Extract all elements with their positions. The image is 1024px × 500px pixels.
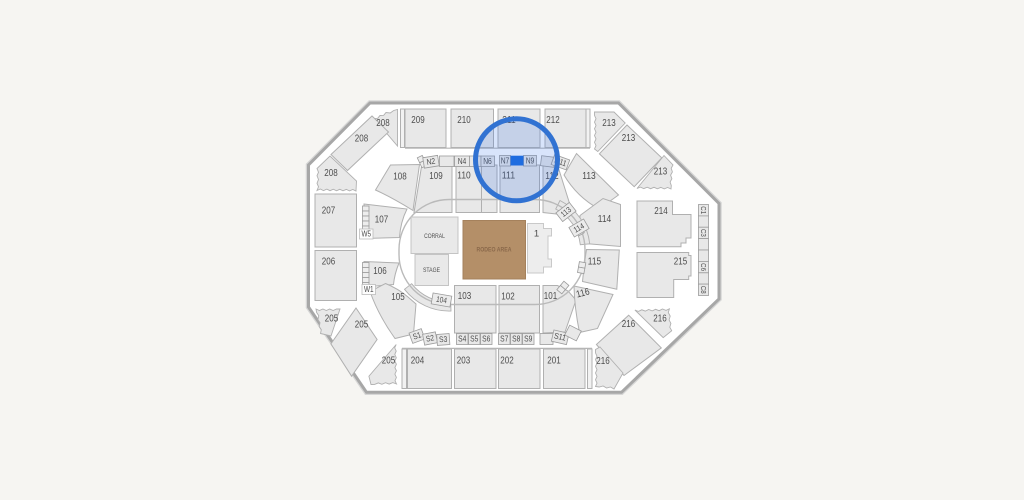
svg-text:113: 113 — [582, 171, 596, 182]
svg-text:215: 215 — [674, 257, 688, 268]
svg-text:205: 205 — [382, 356, 396, 367]
svg-text:107: 107 — [375, 215, 388, 226]
svg-text:CORRAL: CORRAL — [424, 233, 445, 240]
svg-text:W1: W1 — [364, 285, 374, 294]
svg-text:N2: N2 — [426, 157, 436, 167]
svg-text:RODEO AREA: RODEO AREA — [477, 247, 512, 254]
svg-text:S9: S9 — [524, 335, 533, 344]
svg-text:208: 208 — [324, 168, 338, 179]
svg-text:W5: W5 — [362, 230, 372, 239]
svg-text:205: 205 — [325, 314, 339, 325]
svg-text:S3: S3 — [439, 335, 448, 345]
svg-text:206: 206 — [322, 257, 336, 268]
svg-text:207: 207 — [322, 206, 335, 217]
svg-text:204: 204 — [411, 356, 425, 367]
svg-text:210: 210 — [457, 115, 471, 126]
svg-text:1: 1 — [534, 229, 539, 240]
svg-text:212: 212 — [546, 115, 559, 126]
svg-text:S7: S7 — [500, 335, 509, 344]
svg-text:214: 214 — [654, 206, 668, 217]
svg-text:208: 208 — [355, 134, 369, 145]
svg-text:209: 209 — [411, 115, 424, 126]
svg-text:115: 115 — [588, 257, 602, 268]
svg-text:109: 109 — [429, 171, 442, 182]
svg-text:106: 106 — [373, 266, 387, 277]
svg-text:213: 213 — [622, 133, 636, 144]
svg-text:102: 102 — [501, 292, 514, 303]
svg-text:103: 103 — [458, 291, 472, 302]
svg-text:201: 201 — [547, 356, 560, 367]
svg-text:114: 114 — [598, 214, 612, 225]
svg-text:S8: S8 — [512, 335, 521, 344]
svg-text:216: 216 — [653, 314, 667, 325]
svg-text:C8: C8 — [699, 286, 708, 294]
svg-text:C1: C1 — [699, 206, 708, 214]
svg-text:216: 216 — [622, 319, 636, 330]
svg-text:110: 110 — [457, 171, 471, 182]
svg-text:S6: S6 — [482, 335, 491, 344]
svg-text:S4: S4 — [458, 335, 467, 344]
svg-text:213: 213 — [654, 167, 668, 178]
svg-text:202: 202 — [500, 356, 513, 367]
svg-text:208: 208 — [376, 118, 390, 129]
svg-text:101: 101 — [544, 291, 557, 302]
svg-text:N4: N4 — [458, 157, 467, 166]
svg-text:213: 213 — [602, 118, 616, 129]
svg-text:203: 203 — [457, 356, 471, 367]
svg-text:S5: S5 — [470, 335, 479, 344]
svg-text:STAGE: STAGE — [423, 267, 440, 274]
svg-text:108: 108 — [393, 172, 407, 183]
svg-text:C3: C3 — [699, 229, 708, 237]
svg-text:C6: C6 — [699, 263, 708, 271]
svg-text:216: 216 — [596, 356, 610, 367]
svg-text:105: 105 — [391, 292, 405, 303]
svg-text:205: 205 — [355, 320, 369, 331]
